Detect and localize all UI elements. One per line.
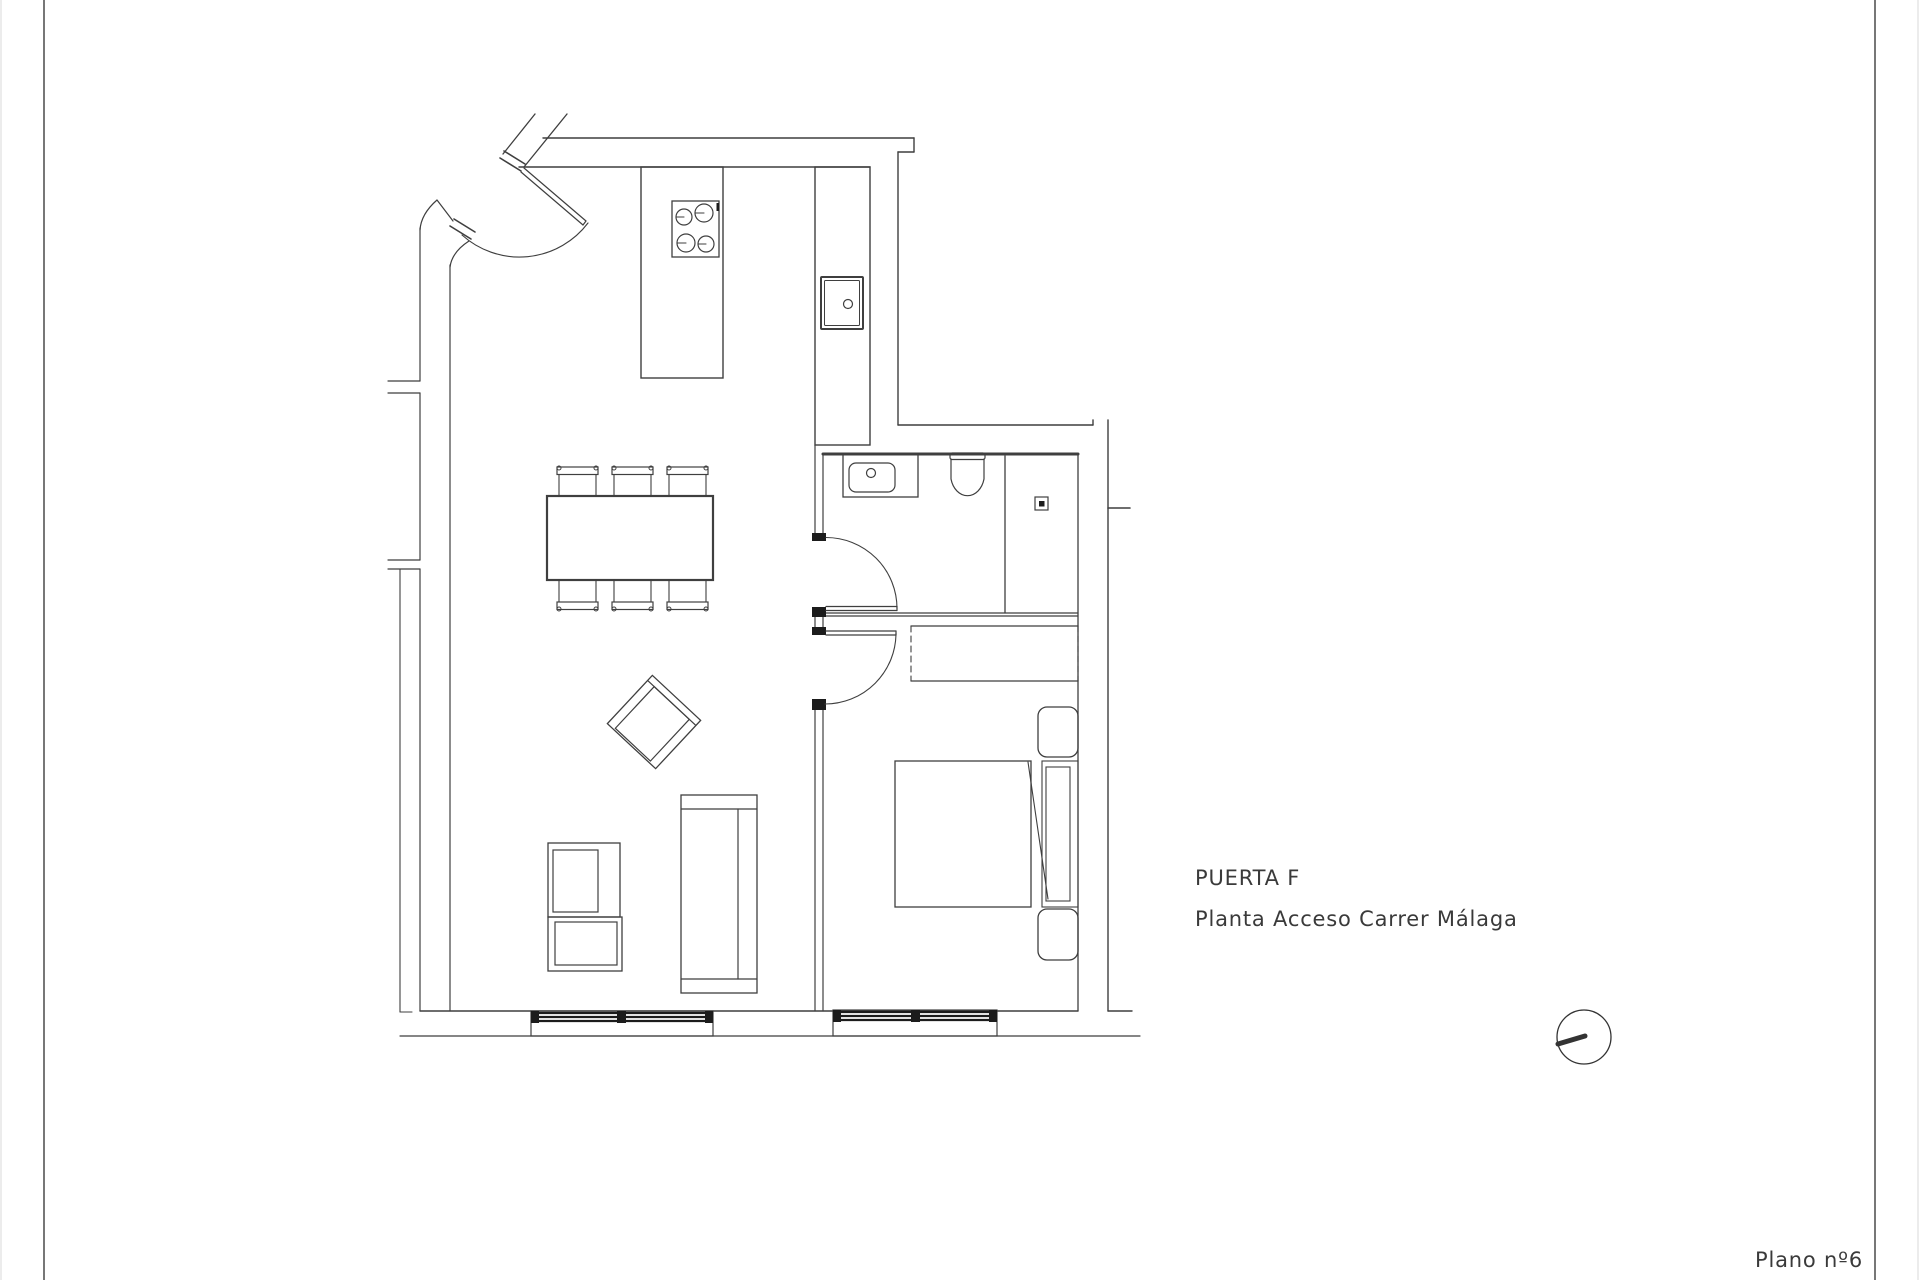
- page-border-lines: [44, 0, 1875, 1280]
- bed: [895, 761, 1078, 907]
- armchair: [607, 675, 700, 768]
- sofa: [681, 795, 757, 993]
- plan-subtitle: Planta Acceso Carrer Málaga: [1195, 907, 1518, 931]
- bathroom-door: [826, 538, 897, 611]
- nightstands: [1038, 707, 1078, 960]
- toilet: [950, 453, 985, 496]
- shower: [1005, 456, 1048, 613]
- cooktop: [672, 201, 719, 257]
- dining-table: [547, 496, 713, 580]
- page-edges: [1, 0, 1918, 1280]
- kitchen-counter: [815, 167, 870, 445]
- bathroom-sink: [843, 454, 918, 497]
- tv-unit: [548, 843, 622, 971]
- page: PUERTA F Planta Acceso Carrer Málaga Pla…: [0, 0, 1920, 1280]
- window-glazing: [531, 1010, 997, 1023]
- plan-number-label: Plano nº6: [1755, 1248, 1863, 1272]
- exterior-walls: [388, 114, 1140, 1036]
- wardrobe: [911, 626, 1078, 681]
- kitchen-sink: [821, 277, 863, 329]
- floor-plan-drawing: [0, 0, 1920, 1280]
- plan-title: PUERTA F: [1195, 866, 1300, 890]
- kitchen-island: [641, 167, 723, 378]
- dining-chairs: [557, 466, 708, 611]
- bedroom-door: [825, 631, 896, 704]
- north-indicator: [1557, 1010, 1611, 1064]
